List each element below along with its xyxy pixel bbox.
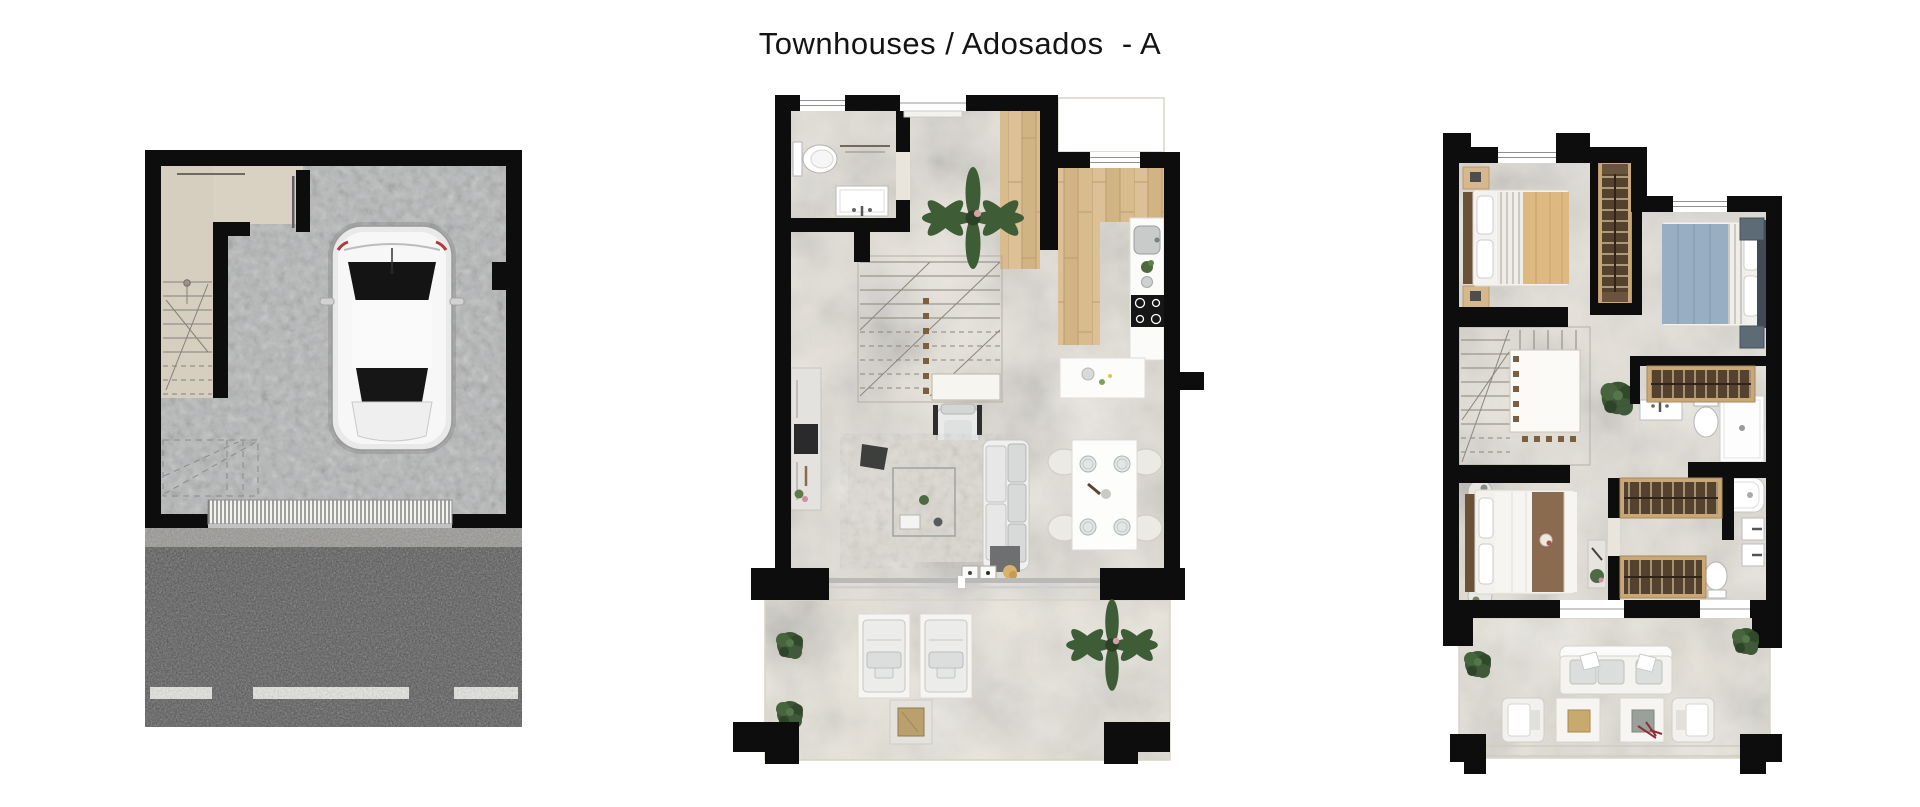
pillow (1744, 276, 1758, 316)
driveway-road (145, 528, 522, 727)
toilet-tank (1708, 590, 1726, 598)
fire-table (890, 700, 932, 744)
car (320, 222, 464, 454)
bathroom-door-gap (1608, 518, 1620, 556)
tv (794, 424, 818, 454)
nightstand (1740, 218, 1764, 240)
upper-floor-plan (1443, 133, 1788, 774)
garage-floor-plan (145, 150, 522, 727)
stair-landing (932, 374, 1000, 400)
outdoor-armchair (1502, 698, 1544, 742)
bed-headboard (1465, 494, 1475, 592)
centerpiece (1101, 489, 1111, 499)
table-plant (919, 495, 929, 505)
toilet-tank (793, 142, 802, 176)
car-rear-window (356, 368, 428, 402)
door-leaf (292, 176, 295, 228)
outdoor-sofa (1560, 646, 1672, 694)
pillow (1477, 240, 1493, 278)
flower-plant (795, 490, 804, 499)
side-table (1556, 698, 1600, 742)
wardrobe-horizontal-bottom (1620, 556, 1706, 598)
outdoor-armchair (1672, 698, 1714, 742)
car-mirror-right (450, 298, 464, 305)
garage-door (208, 500, 452, 529)
car-roof (352, 300, 432, 368)
lounge-chair (863, 620, 905, 692)
pillow (1479, 544, 1493, 584)
stair-landing (1510, 350, 1580, 432)
pillow (1477, 196, 1493, 234)
hall-plant (1601, 382, 1635, 416)
nightstand (1740, 326, 1764, 348)
island-bowl (1082, 368, 1094, 380)
toilet-bowl (1694, 407, 1718, 437)
floorplan-sheet: Townhouses / Adosados - A (0, 0, 1920, 807)
floorplans-graphic (0, 0, 1920, 807)
front-porch (1058, 98, 1164, 152)
ground-floor-plan (733, 95, 1204, 765)
sink-faucet (1155, 238, 1160, 243)
side-table (1620, 698, 1664, 742)
bed-headboard (1463, 192, 1473, 284)
wardrobe-horizontal-mid (1620, 478, 1722, 518)
entry-threshold (904, 111, 962, 117)
terrace-bush (1464, 651, 1491, 678)
terrace-bush (776, 632, 803, 659)
table-tray (900, 515, 920, 529)
sofa (983, 440, 1029, 572)
wardrobe-horizontal-top (1647, 366, 1755, 402)
kitchen-island (1060, 358, 1145, 398)
car-trunk (352, 402, 432, 441)
entry-wood-floor (1000, 111, 1040, 269)
wall-return (1180, 372, 1204, 390)
pillow (1479, 498, 1493, 538)
wardrobe-vertical (1598, 160, 1632, 306)
toilet-bowl (1705, 562, 1727, 590)
terrace-bush (1732, 628, 1759, 655)
wc-door-gap (896, 152, 910, 200)
lounge-chair (925, 620, 967, 692)
bed-runner (1497, 192, 1525, 284)
kettle (1142, 277, 1153, 288)
wall-notch (492, 262, 506, 290)
bed-blanket-blue (1662, 224, 1728, 324)
car-mirror-left (320, 298, 334, 305)
rug-throw (860, 444, 888, 470)
